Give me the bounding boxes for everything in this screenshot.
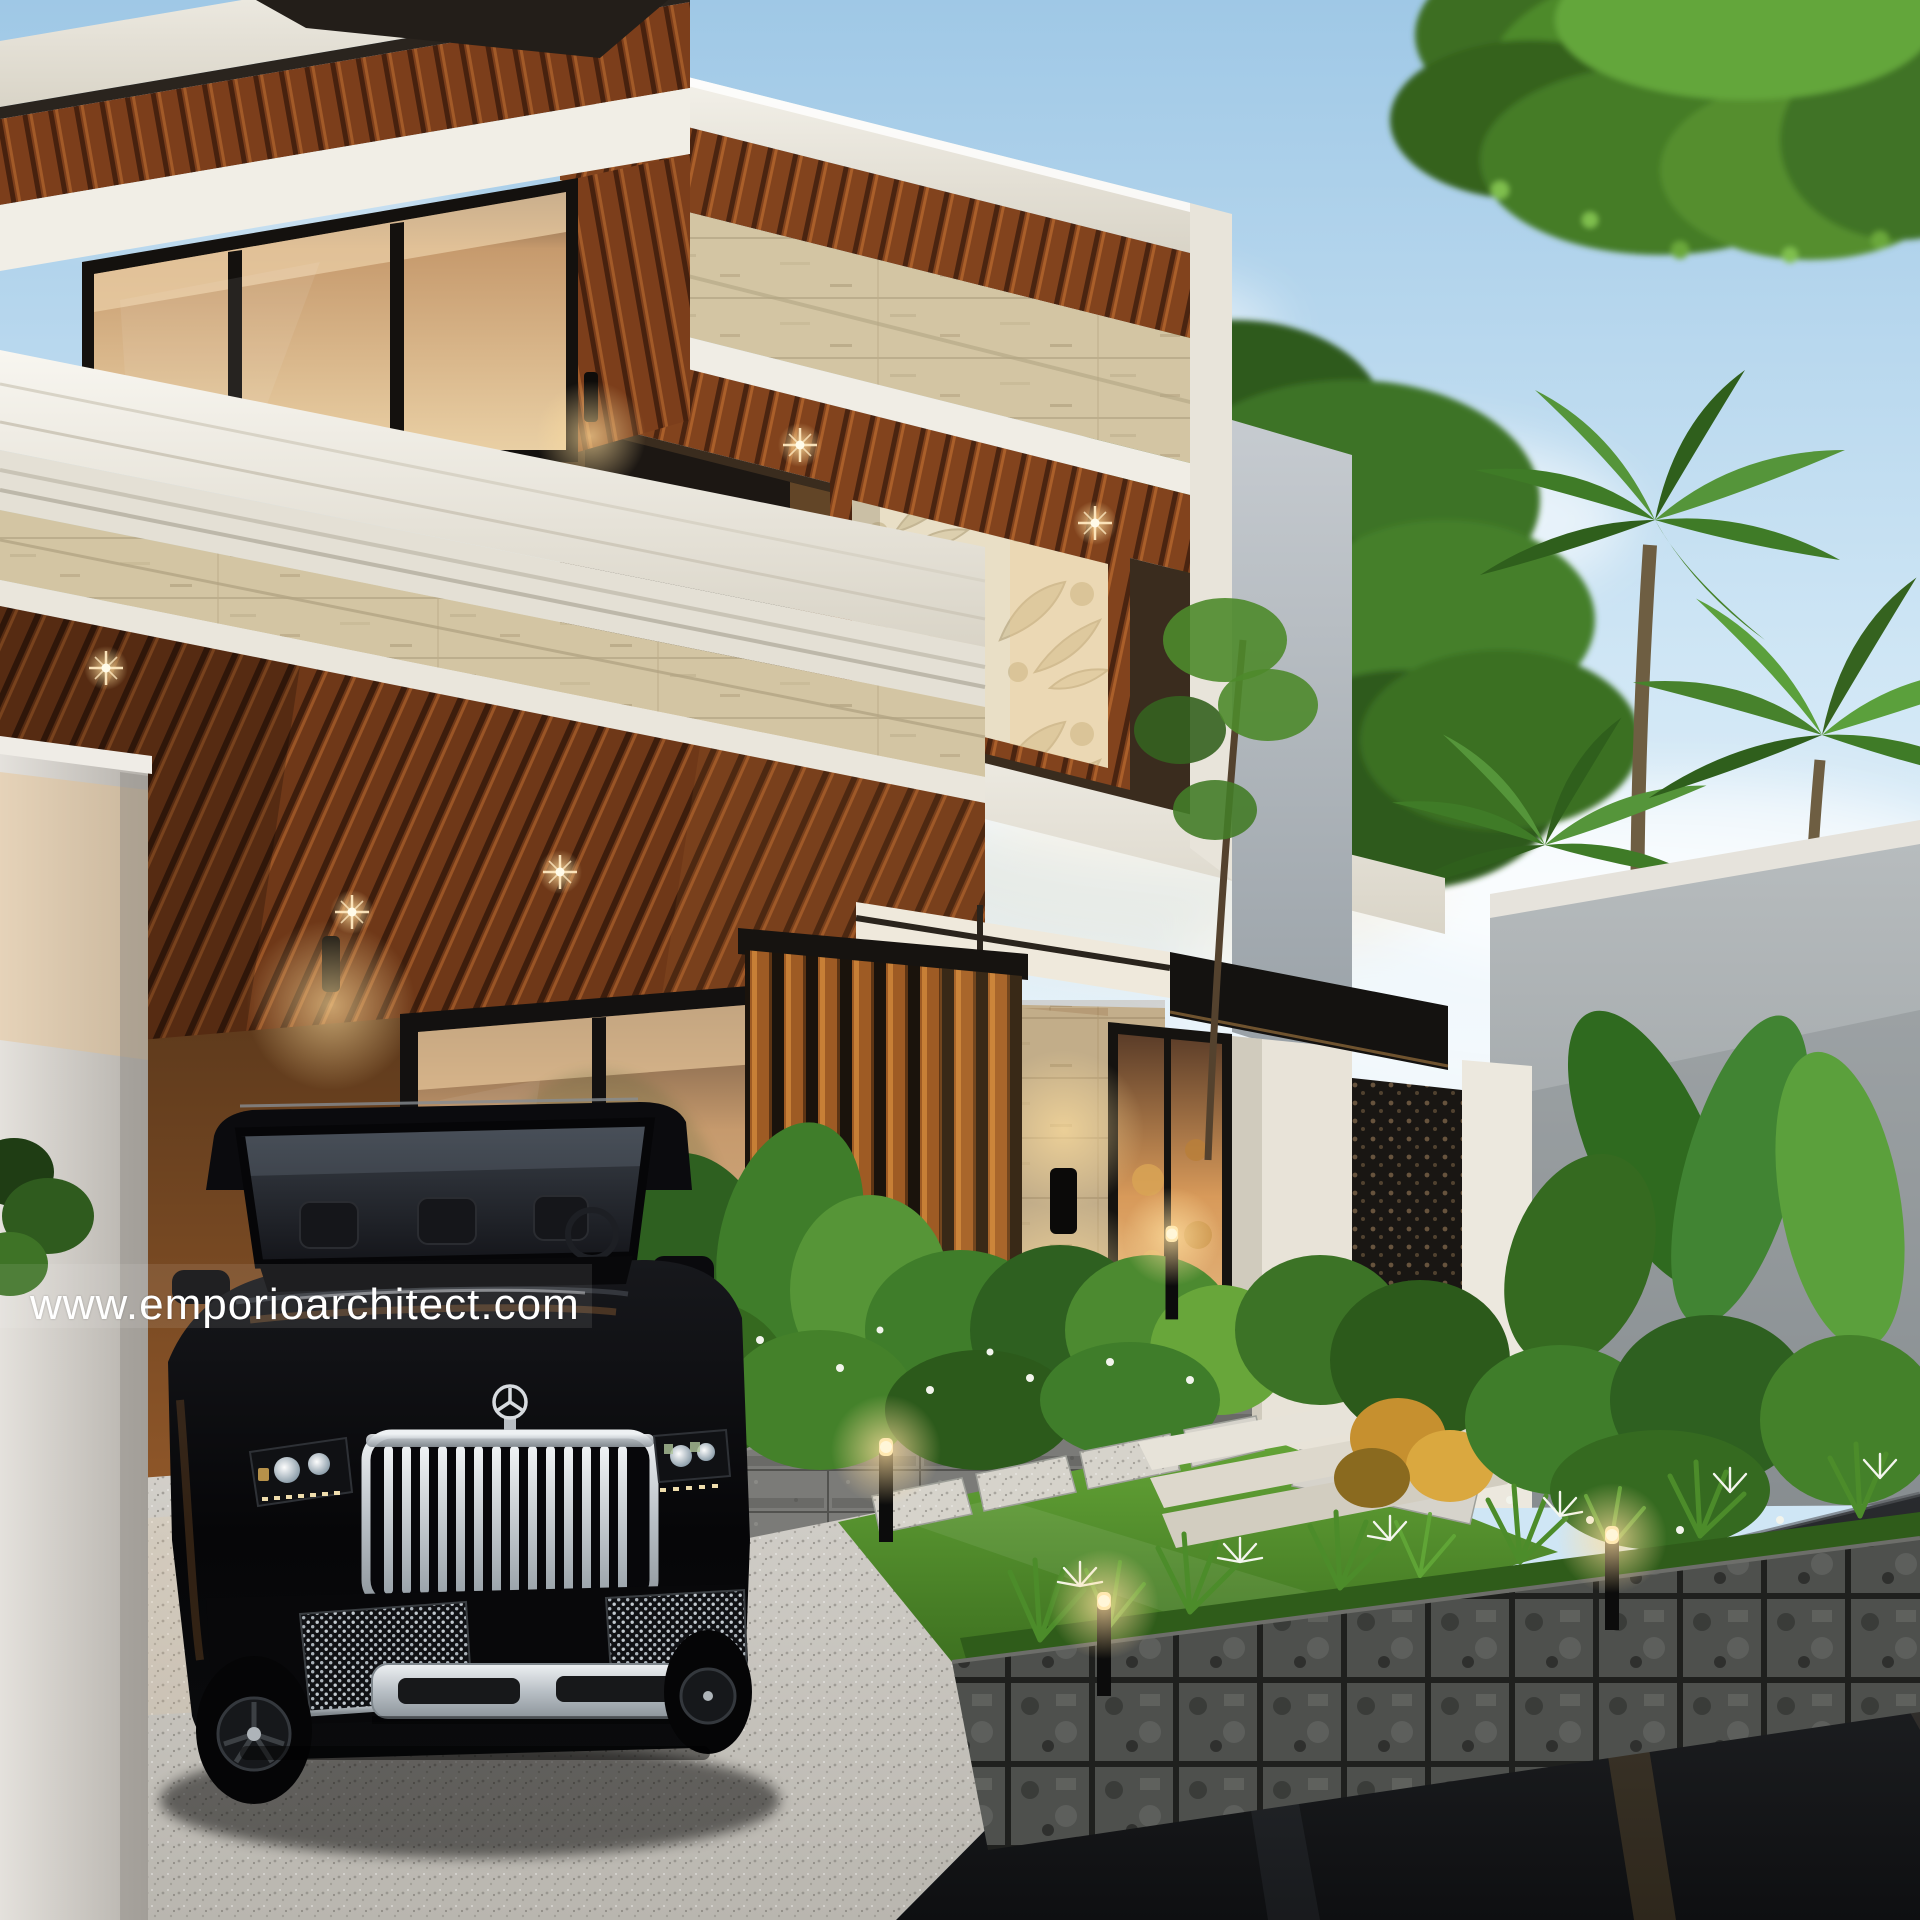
scene-canvas — [0, 0, 1920, 1920]
watermark-text: www.emporioarchitect.com — [30, 1280, 580, 1330]
wall-sconce — [1050, 1168, 1077, 1234]
carport-wall-sconce — [246, 920, 416, 1090]
bumper-chrome-bar — [372, 1664, 702, 1724]
downlight-sparkle — [1073, 501, 1117, 545]
suv-grille — [366, 1434, 654, 1606]
downlight-sparkle — [538, 850, 582, 894]
corner-trim-white — [1190, 203, 1232, 880]
wheel-front-left — [196, 1656, 312, 1804]
headrests — [300, 1196, 588, 1248]
downlight-sparkle — [84, 646, 128, 690]
wheel-front-right — [664, 1630, 752, 1754]
architectural-render: www.emporioarchitect.com — [0, 0, 1920, 1920]
downlight-sparkle — [778, 423, 822, 467]
